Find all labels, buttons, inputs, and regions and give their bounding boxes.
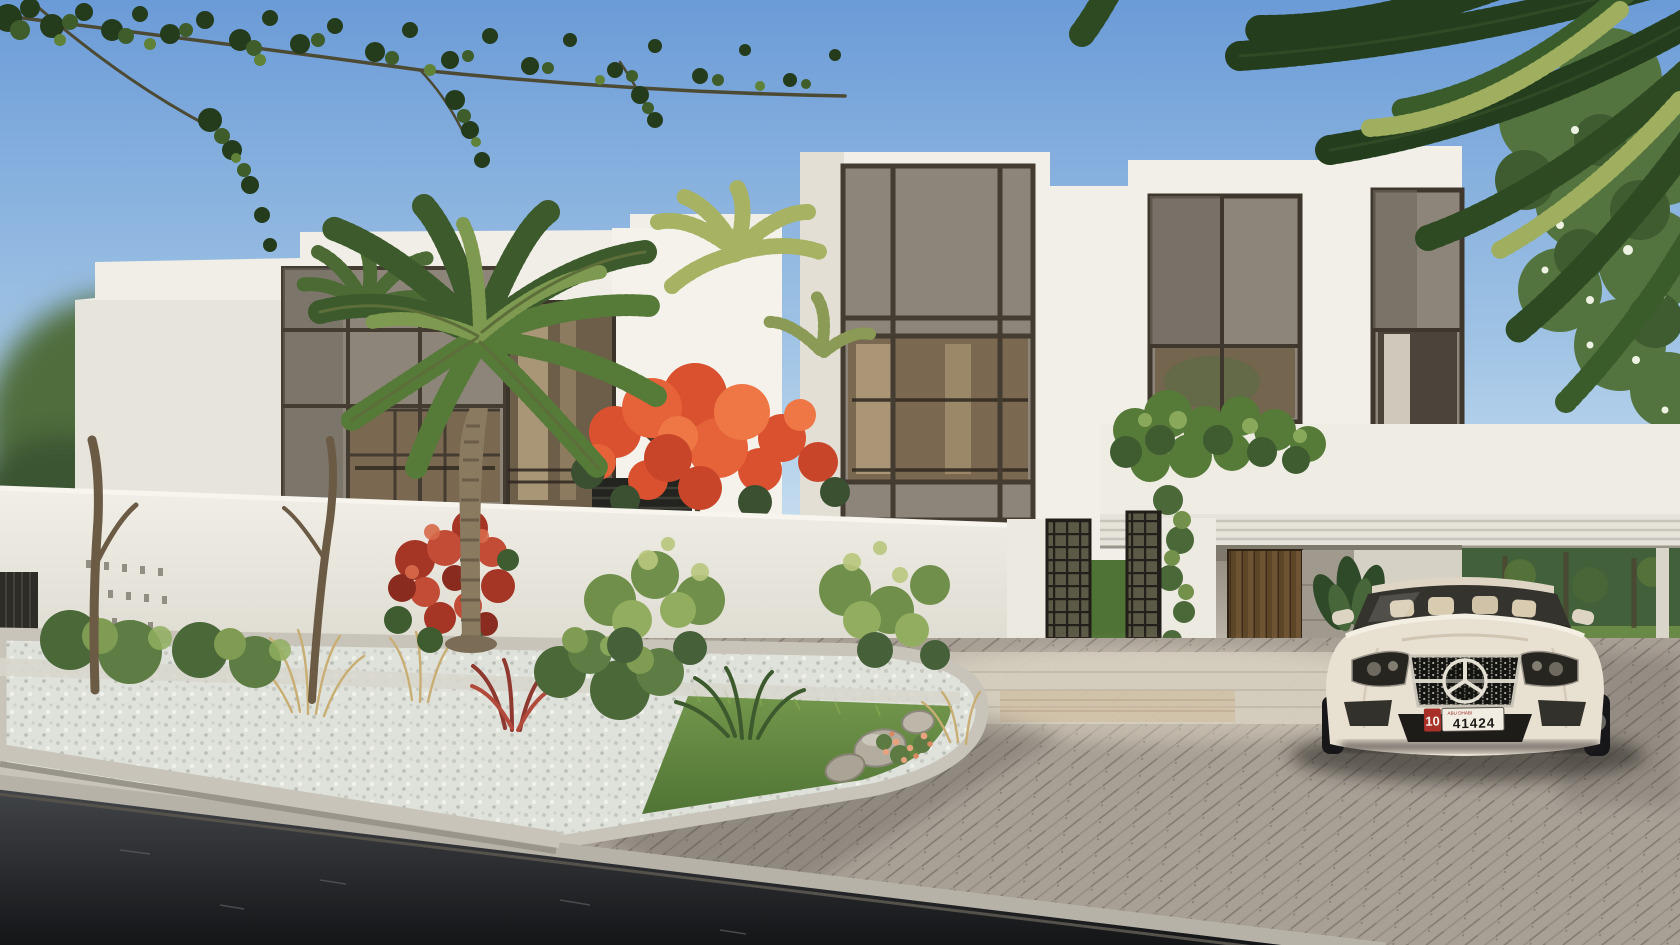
- headlight-left: [1352, 651, 1410, 686]
- grille: [1410, 656, 1520, 706]
- scene-canvas: 10 ABU DHABI 41424: [0, 0, 1680, 945]
- headlight-right: [1520, 651, 1578, 686]
- villa-main-window-a: [1150, 196, 1300, 422]
- rendered-photo: 10 ABU DHABI 41424: [0, 0, 1680, 945]
- mercedes-star-icon: [1444, 660, 1486, 702]
- plate-prefix: 10: [1425, 713, 1440, 728]
- license-plate: 10 ABU DHABI 41424: [1424, 707, 1504, 731]
- plate-number: 41424: [1453, 715, 1496, 731]
- slatted-timber-door: [1228, 550, 1302, 652]
